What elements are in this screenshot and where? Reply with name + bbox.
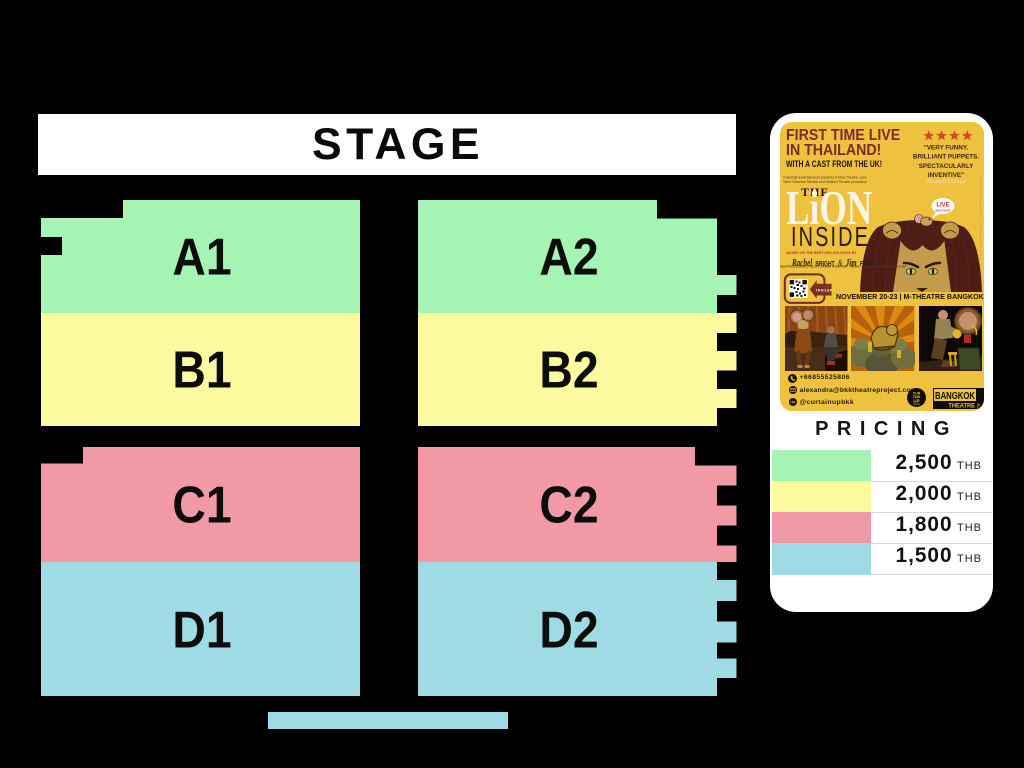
svg-text:LINE: LINE bbox=[790, 401, 796, 404]
svg-text:CUR: CUR bbox=[913, 391, 921, 395]
svg-text:BANGKOK: BANGKOK bbox=[935, 390, 975, 402]
svg-text:Based On Rachel Bright and Jim: Based On Rachel Bright and Jim Field. Li… bbox=[979, 178, 981, 260]
svg-text:UP: UP bbox=[913, 398, 919, 403]
svg-text:TRAILER: TRAILER bbox=[816, 288, 833, 292]
svg-text:PROJECT: PROJECT bbox=[976, 403, 981, 409]
svg-text:ON STAGE!: ON STAGE! bbox=[935, 209, 950, 213]
svg-text:LIVE: LIVE bbox=[936, 203, 949, 209]
svg-text:THEATRE: THEATRE bbox=[948, 402, 975, 409]
